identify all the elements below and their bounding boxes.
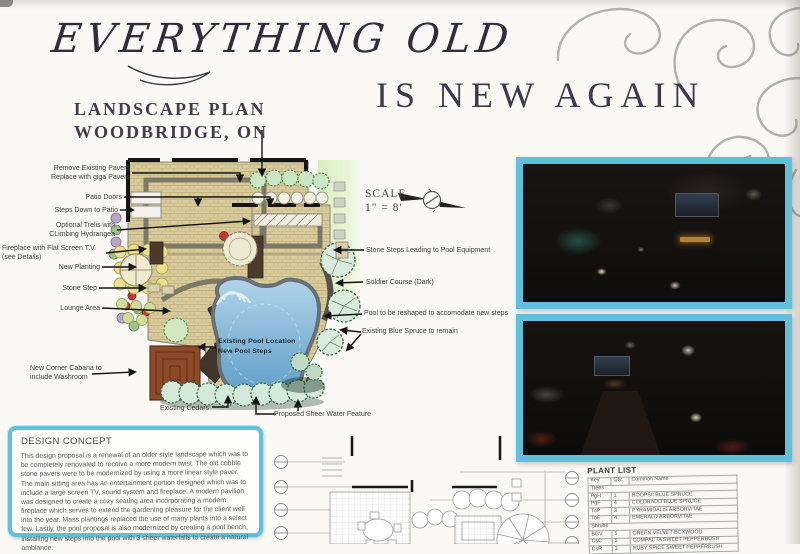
night-render-photo-1 [516,157,792,309]
label-optional-trellis: Optional Trelis with CLimbing Hydrangea [49,221,115,240]
scan-corner-smudge [0,0,13,7]
subtitle-line-1: LANDSCAPE PLAN [74,98,268,121]
scanned-presentation-board: { "board": { "title_script": "EVERYTHING… [0,0,800,544]
title-flourish [128,66,210,85]
label-soldier-course: Soldier Course (Dark) [366,278,434,287]
board-title-serif: IS NEW AGAIN [376,74,705,116]
plant-list-table: Key Qty. Common Name Trees PgH 1 HOOPSII… [587,475,738,554]
cell-qty: 3 [612,545,630,553]
fireplace-glow [680,237,710,242]
patio-table [223,232,257,266]
label-pool-location: Existing Pool Location New Pool Steps [218,337,296,357]
scale-note: SCALE 1" = 8' [365,188,406,216]
board-title-script: EVERYTHING OLD [49,16,516,62]
label-lounge-area: Lounge Area [60,304,100,313]
label-fireplace-tv: Fireplace with Flat Screen T.V. (see Det… [2,244,96,263]
night-render-photo-2 [516,314,792,462]
night-render-photo-2-image [523,321,785,455]
table-row: CsR 3 RUBY SPICE SWEET PEPPERBUSH [589,543,738,553]
label-stone-step: Stone Step [62,284,97,293]
plan-subtitle: LANDSCAPE PLAN WOODBRIDGE, ON [74,98,268,144]
design-concept-title: DESIGN CONCEPT [21,436,250,447]
night-render-photo-1-image [523,164,785,302]
north-arrow-icon [398,189,466,212]
scale-value: 1" = 8' [365,202,406,216]
design-concept-box: DESIGN CONCEPT This design proposal is a… [8,426,263,537]
label-existing-cedars: Existing Cedars [160,404,209,413]
tv-screen-glow [594,356,630,376]
subtitle-line-2: WOODBRIDGE, ON [74,121,268,144]
label-existing-blue-spruce: Existing Blue Spruce to remain [362,327,458,336]
label-pool-reshaped: Pool to be reshaped to accomodate new st… [364,309,508,318]
label-remove-existing-pavers: Remove Existing Pavers Replace with giga… [51,164,130,183]
scale-label: SCALE [365,188,406,202]
label-steps-down-to-patio: Steps Down to Patio [55,206,118,215]
planter-silhouette [581,391,661,455]
round-shrub [164,318,188,342]
label-corner-cabana: New Corner Cabana to include Washroom [30,364,102,383]
label-stone-steps-pool-equipment: Stone Steps Leading to Pool Equipment [366,246,490,255]
design-concept-body: This design proposal is a renewal of an … [21,450,251,553]
tv-screen-glow [675,193,719,217]
cell-name: RUBY SPICE SWEET PEPPERBUSH [630,543,738,553]
label-patio-doors: Patio Doors [85,193,122,202]
plant-list-title: PLANT LIST [587,464,739,476]
cell-key: CsR [589,546,612,554]
plant-list: PLANT LIST Key Qty. Common Name Trees Pg… [587,464,741,554]
scan-edge-shadow-top [0,0,800,9]
label-sheer-water-feature: Proposed Sheer Water Feature [274,410,371,419]
label-new-planting: New Planting [59,263,100,272]
